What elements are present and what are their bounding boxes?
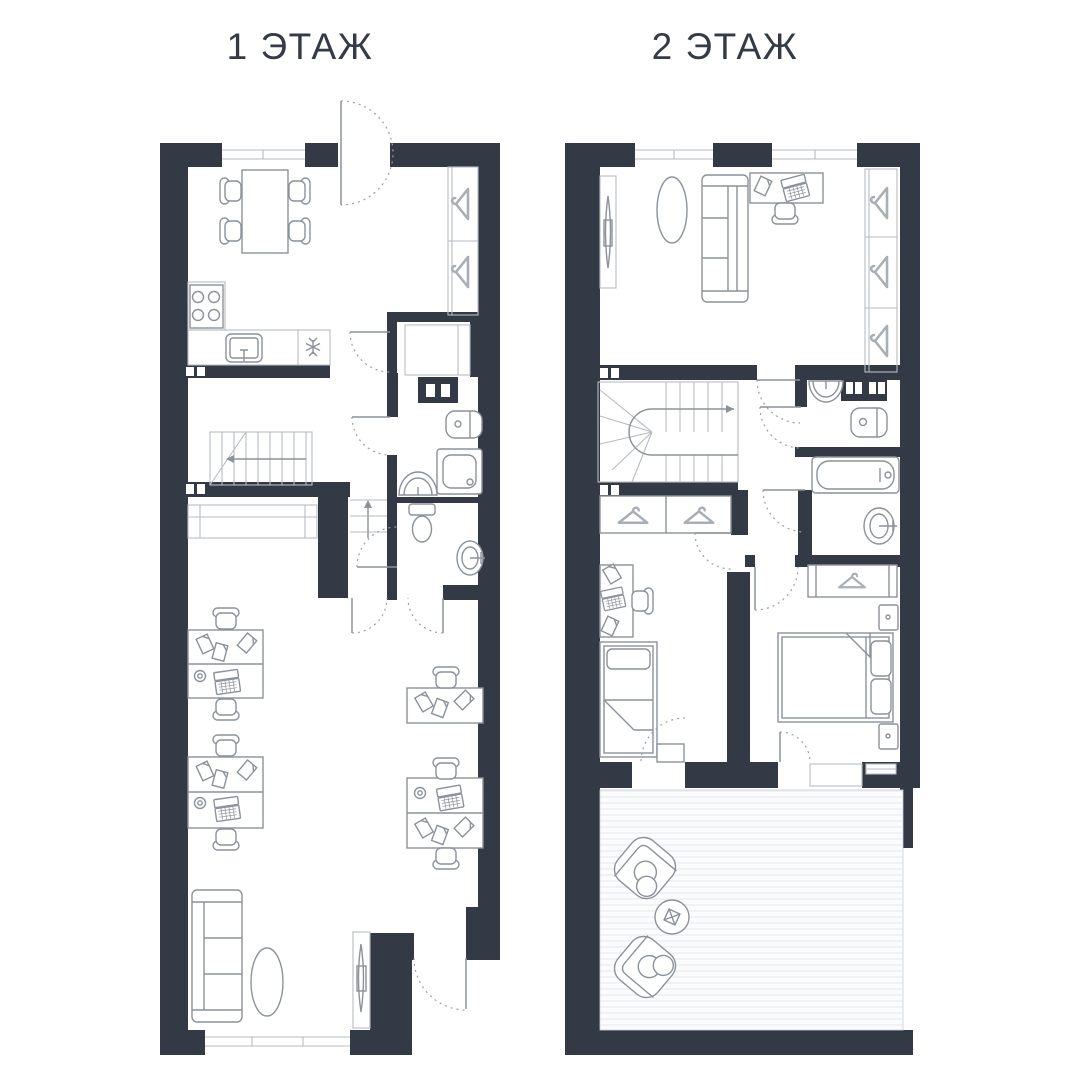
door-swing-icon [695, 533, 731, 569]
kitchen-sink-icon [226, 334, 262, 362]
office-chair-icon [433, 848, 459, 869]
bathroom-sink-icon [864, 508, 897, 544]
sofa-icon [702, 175, 748, 302]
storage-closet-icon [405, 325, 470, 375]
door-swing-icon [352, 417, 390, 455]
bathroom-sink-icon [399, 472, 437, 495]
wardrobe-hanger-icon [808, 565, 897, 597]
staircase-icon [210, 432, 312, 485]
snowflake-icon [306, 338, 320, 356]
chair-icon [289, 218, 310, 244]
toilet-icon [409, 504, 435, 542]
chair-icon [289, 178, 310, 204]
floor2-plan [565, 143, 920, 1055]
laptop-icon [436, 785, 463, 811]
dining-table-icon [242, 170, 288, 253]
chair-icon [220, 218, 241, 244]
office-chair-icon [213, 735, 239, 756]
laptop-icon [214, 669, 241, 694]
bathtub-icon [812, 457, 899, 493]
washing-machine-icon [851, 408, 887, 437]
sofa-icon [192, 890, 242, 1022]
wardrobe-hanger-icon [865, 169, 897, 372]
stair-entry-steps [350, 500, 387, 538]
staircase-icon [598, 382, 738, 482]
phone-icon [415, 788, 426, 799]
chair-icon [220, 178, 241, 204]
laptop-icon [601, 587, 626, 611]
floor-plan-drawing [0, 0, 1080, 1080]
office-chair-icon [433, 758, 459, 779]
door-swing-icon [350, 332, 390, 372]
door-swing-icon [755, 567, 798, 610]
door-swing-icon [757, 380, 800, 423]
tv-icon [353, 932, 370, 1028]
washing-machine-icon [446, 411, 482, 438]
stove-icon [188, 282, 225, 330]
entrance-door-swing-icon [341, 101, 393, 205]
door-swing-icon [414, 958, 466, 1010]
laptop-icon [214, 796, 241, 821]
bathroom-sink-icon [809, 381, 843, 402]
office-chair-icon [433, 667, 459, 688]
office-chair-icon [213, 608, 239, 629]
door-swing-icon [760, 407, 801, 448]
shower-icon [437, 449, 482, 494]
wardrobe-hanger-icon [448, 167, 478, 315]
cabinet-icon [188, 505, 317, 538]
floor1-plan [160, 101, 500, 1055]
office-chair-icon [213, 699, 239, 720]
office-chair-icon [632, 588, 653, 614]
office-chair-icon [213, 829, 239, 850]
door-swing-icon [352, 598, 443, 633]
office-chair-icon [772, 203, 798, 224]
double-bed-icon [778, 633, 893, 722]
tv-icon [600, 176, 616, 288]
floor-plan-canvas: 1 ЭТАЖ 2 ЭТАЖ [0, 0, 1080, 1080]
coffee-table-icon [655, 900, 689, 934]
wardrobe-hanger-icon [600, 496, 731, 533]
single-bed-icon [600, 642, 657, 757]
phone-icon [195, 798, 206, 809]
rug-icon [657, 177, 687, 243]
phone-icon [195, 671, 206, 682]
rug-icon [251, 948, 283, 1016]
